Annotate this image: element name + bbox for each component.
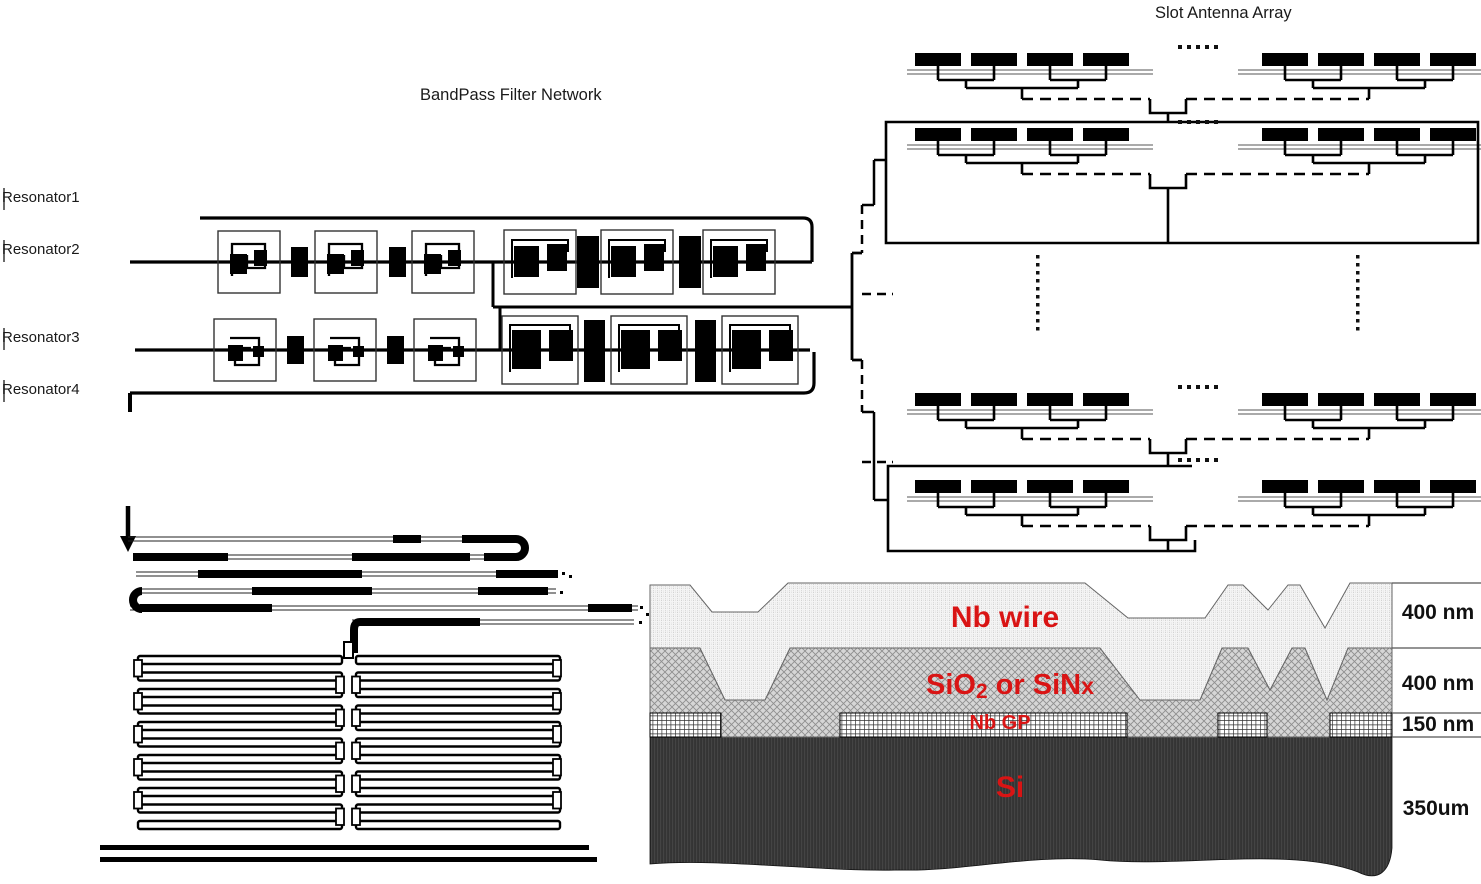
feedline [100,845,589,850]
filter-title: BandPass Filter Network [420,86,602,105]
resonator-label: Resonator2 [2,241,80,258]
layer-thickness-label: 400 nm [1402,601,1474,625]
filter-network-schematic [4,160,893,500]
resonator-label: Resonator4 [2,381,80,398]
zoom-arrow [120,506,136,552]
resonator-label: Resonator1 [2,189,80,206]
layer-name-label-nb-gp: Nb GP [969,712,1030,735]
layer-thickness-label: 400 nm [1402,672,1474,696]
resonator-detail-schematic [100,506,649,862]
row-ellipsis-dots [1178,45,1218,462]
figure: BandPass Filter Network Slot Antenna Arr… [0,0,1481,884]
resonator-label: Resonator3 [2,329,80,346]
diagram-canvas [0,0,1481,884]
antenna-array-schematic [886,45,1481,551]
cross-section-diagram [650,583,1481,876]
column-ellipsis-dots [1036,255,1360,331]
layer-thickness-label: 350um [1403,797,1470,821]
antenna-title: Slot Antenna Array [1155,4,1292,23]
layer-name-label-sio2: SiO2 or SiNx [926,669,1094,704]
layer-thickness-label: 150 nm [1402,713,1474,737]
layer-name-label-nb-wire: Nb wire [951,601,1059,635]
layer-si [650,737,1392,876]
layer-name-label-si: Si [996,771,1024,805]
